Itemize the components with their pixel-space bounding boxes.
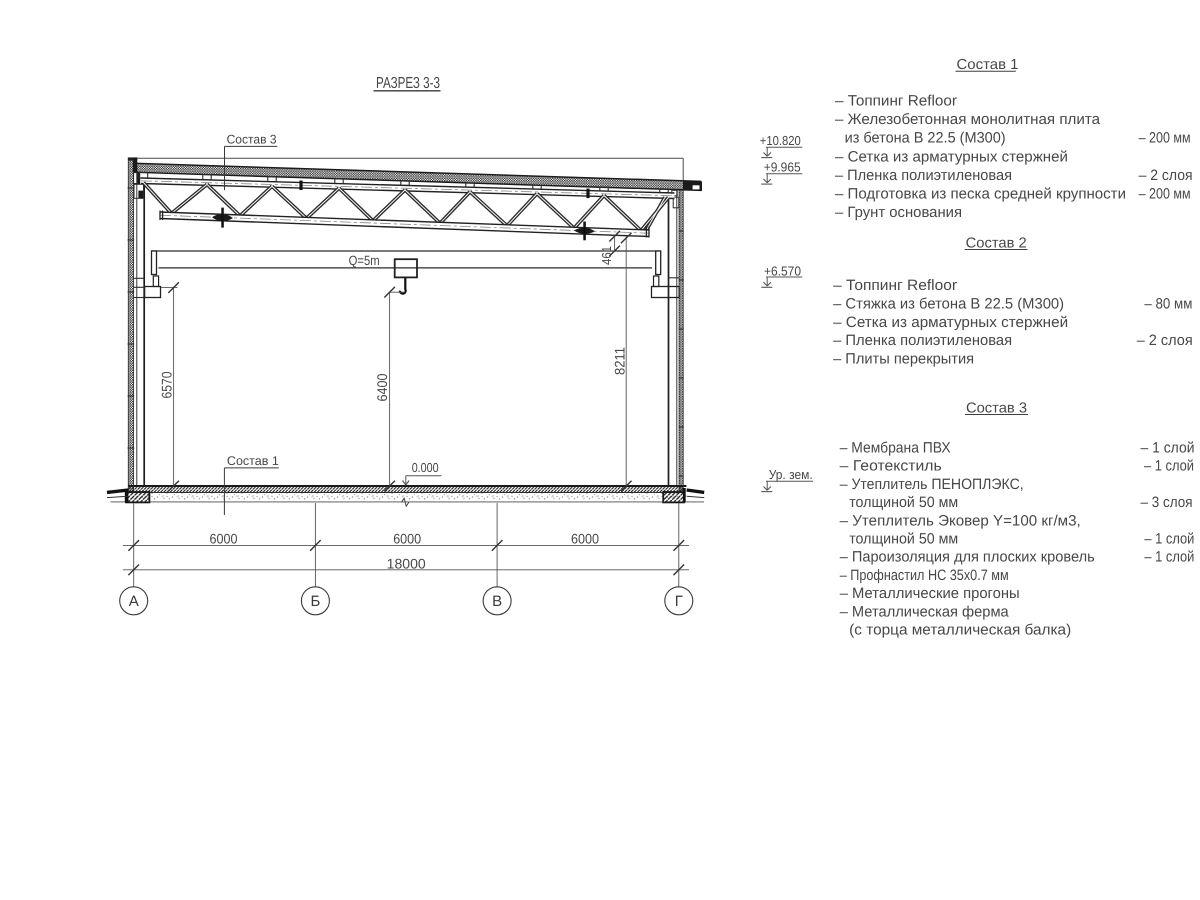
svg-text:0.000: 0.000 [412, 460, 439, 475]
svg-text:– Топпинг Refloor: – Топпинг Refloor [835, 93, 957, 110]
svg-text:8211: 8211 [612, 347, 628, 375]
svg-text:– Металлическая ферма: – Металлическая ферма [840, 603, 1010, 620]
svg-text:– Сетка из арматурных стержней: – Сетка из арматурных стержней [833, 314, 1068, 331]
svg-text:– 1 слой: – 1 слой [1141, 440, 1195, 457]
svg-text:Состав 2: Состав 2 [966, 235, 1027, 251]
svg-text:толщиной 50 мм: толщиной 50 мм [849, 494, 958, 511]
svg-text:Б: Б [310, 593, 320, 610]
svg-text:6000: 6000 [571, 530, 599, 546]
svg-text:Г: Г [675, 593, 683, 610]
svg-text:из бетона В 22.5 (М300): из бетона В 22.5 (М300) [845, 130, 1006, 147]
svg-text:6000: 6000 [393, 530, 421, 546]
svg-text:– Металлические прогоны: – Металлические прогоны [840, 585, 1020, 602]
svg-text:6570: 6570 [159, 371, 175, 398]
svg-text:Q=5m: Q=5m [349, 253, 380, 268]
svg-text:– 80 мм: – 80 мм [1144, 295, 1192, 312]
svg-text:– Сетка из арматурных стержней: – Сетка из арматурных стержней [835, 148, 1068, 165]
svg-text:толщиной 50 мм: толщиной 50 мм [849, 531, 958, 548]
svg-text:– Мембрана ПВХ: – Мембрана ПВХ [840, 440, 951, 457]
svg-text:6000: 6000 [210, 530, 238, 546]
svg-text:– Плиты перекрытия: – Плиты перекрытия [833, 351, 974, 368]
svg-text:– Стяжка из бетона В 22.5 (М30: – Стяжка из бетона В 22.5 (М300) [833, 295, 1064, 312]
svg-text:(с торца металлическая балка): (с торца металлическая балка) [849, 622, 1071, 639]
svg-text:– Пленка полиэтиленовая: – Пленка полиэтиленовая [835, 167, 1012, 184]
svg-text:– Подготовка из песка средней: – Подготовка из песка средней крупности [835, 186, 1126, 203]
svg-text:– Пленка полиэтиленовая: – Пленка полиэтиленовая [833, 332, 1012, 349]
svg-text:+9.965: +9.965 [764, 160, 801, 175]
svg-text:– 200 мм: – 200 мм [1139, 186, 1191, 203]
svg-text:– 1 слой: – 1 слой [1144, 458, 1194, 475]
svg-text:+6.570: +6.570 [764, 263, 801, 278]
svg-text:– 200 мм: – 200 мм [1139, 130, 1191, 147]
svg-text:– Утеплитель Эковер Y=100 кг/м: – Утеплитель Эковер Y=100 кг/м3, [840, 512, 1081, 529]
svg-text:Состав 3: Состав 3 [227, 133, 277, 147]
svg-text:– 1 слой: – 1 слой [1144, 531, 1194, 548]
svg-text:18000: 18000 [387, 555, 426, 571]
svg-text:– 2 слоя: – 2 слоя [1137, 332, 1193, 349]
svg-text:– 1 слой: – 1 слой [1144, 549, 1194, 566]
svg-text:Состав 1: Состав 1 [227, 454, 279, 468]
svg-text:– Пароизоляция для плоских кро: – Пароизоляция для плоских кровель [840, 549, 1095, 566]
svg-text:6400: 6400 [374, 373, 390, 401]
svg-text:– 3 слоя: – 3 слоя [1141, 494, 1193, 511]
svg-text:– Геотекстиль: – Геотекстиль [840, 458, 942, 475]
svg-text:– 2 слоя: – 2 слоя [1139, 167, 1193, 184]
svg-text:Состав 1: Состав 1 [957, 57, 1019, 73]
svg-text:В: В [492, 593, 502, 610]
svg-text:461: 461 [599, 246, 614, 265]
svg-text:– Железобетонная монолитная п: – Железобетонная монолитная плита [835, 111, 1101, 128]
svg-text:А: А [129, 593, 139, 610]
svg-text:+10.820: +10.820 [760, 133, 801, 148]
svg-text:– Профнастил НС 35х0.7 мм: – Профнастил НС 35х0.7 мм [840, 567, 1009, 584]
svg-text:– Топпинг Refloor: – Топпинг Refloor [833, 277, 957, 294]
svg-text:Ур. зем.: Ур. зем. [769, 467, 813, 482]
svg-text:РАЗРЕЗ 3-3: РАЗРЕЗ 3-3 [376, 75, 440, 92]
svg-text:– Утеплитель ПЕНОПЛЭКС,: – Утеплитель ПЕНОПЛЭКС, [840, 476, 1024, 493]
svg-text:– Грунт основания: – Грунт основания [835, 204, 962, 221]
svg-text:Состав 3: Состав 3 [966, 400, 1027, 416]
